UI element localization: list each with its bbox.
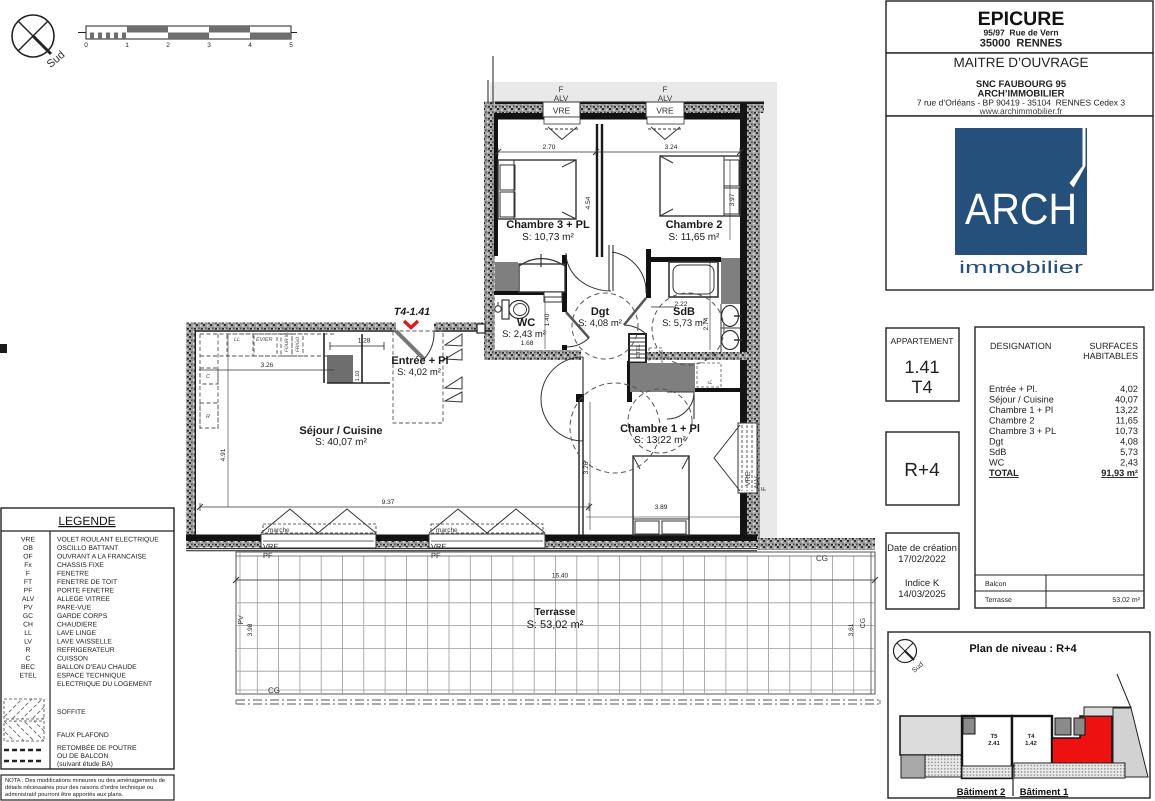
- svg-text:SdB: SdB: [989, 447, 1006, 457]
- svg-text:S: 5,73 m²: S: 5,73 m²: [662, 318, 706, 329]
- svg-text:VRE: VRE: [431, 542, 446, 551]
- svg-text:(suivant étude BA): (suivant étude BA): [57, 761, 113, 768]
- svg-text:5,73: 5,73: [1120, 447, 1138, 457]
- svg-text:9.37: 9.37: [382, 499, 395, 506]
- svg-text:4.54: 4.54: [585, 196, 592, 209]
- svg-text:marche: marche: [436, 527, 458, 534]
- svg-text:WC: WC: [517, 317, 535, 329]
- svg-text:Indice K: Indice K: [905, 578, 940, 589]
- svg-text:VRE: VRE: [553, 106, 571, 116]
- svg-text:BEC: BEC: [21, 664, 35, 671]
- svg-text:LV: LV: [24, 639, 32, 646]
- svg-text:CG: CG: [268, 686, 280, 695]
- svg-text:FOUR M.O.: FOUR M.O.: [284, 327, 290, 352]
- svg-text:Bâtiment 1: Bâtiment 1: [1020, 787, 1069, 798]
- svg-text:HABITABLES: HABITABLES: [1083, 351, 1138, 361]
- svg-text:1.68: 1.68: [521, 340, 534, 347]
- svg-text:T5: T5: [990, 733, 998, 740]
- svg-text:Entrée + Pl: Entrée + Pl: [391, 355, 448, 367]
- svg-text:EVIER: EVIER: [256, 337, 273, 343]
- svg-text:ALV: ALV: [554, 94, 569, 103]
- svg-text:17/02/2022: 17/02/2022: [898, 554, 946, 565]
- svg-text:immobilier: immobilier: [959, 258, 1084, 277]
- svg-text:1: 1: [125, 42, 129, 49]
- svg-text:5: 5: [289, 42, 293, 49]
- svg-text:WC: WC: [989, 458, 1005, 468]
- svg-text:T4: T4: [1027, 733, 1035, 740]
- svg-text:3.61: 3.61: [848, 623, 855, 636]
- svg-text:3.98: 3.98: [247, 623, 254, 636]
- svg-text:Entrée + Pl.: Entrée + Pl.: [989, 384, 1037, 394]
- svg-text:OU DE BALCON: OU DE BALCON: [57, 753, 108, 760]
- svg-text:T4: T4: [911, 377, 932, 397]
- svg-text:14/03/2025: 14/03/2025: [898, 589, 946, 600]
- svg-text:F: F: [761, 487, 768, 491]
- svg-text:LL: LL: [24, 630, 32, 637]
- svg-text:administratif pourront être ap: administratif pourront être apportés aux…: [5, 791, 124, 798]
- svg-text:Chambre 1 + Pl: Chambre 1 + Pl: [620, 423, 700, 435]
- svg-text:10,73: 10,73: [1115, 426, 1138, 436]
- svg-text:PF: PF: [263, 551, 273, 560]
- svg-text:Plan de niveau : R+4: Plan de niveau : R+4: [969, 643, 1077, 655]
- svg-text:ALV: ALV: [22, 596, 35, 603]
- svg-text:40,07: 40,07: [1115, 395, 1138, 405]
- svg-text:T4-1.41: T4-1.41: [394, 306, 430, 318]
- svg-text:R: R: [206, 414, 210, 420]
- svg-text:NOTA : Des modifications mineu: NOTA : Des modifications mineures ou des…: [5, 777, 165, 784]
- svg-text:Chambre 1 + Pl: Chambre 1 + Pl: [989, 405, 1053, 415]
- svg-text:S: 13,22 m²: S: 13,22 m²: [634, 435, 686, 446]
- svg-text:CHASSIS FIXE: CHASSIS FIXE: [57, 562, 104, 569]
- svg-text:CG: CG: [816, 554, 828, 563]
- svg-text:95/97 Rue de Vern: 95/97 Rue de Vern: [983, 28, 1058, 38]
- svg-text:Balcon: Balcon: [985, 580, 1007, 588]
- svg-text:TOTAL: TOTAL: [989, 468, 1019, 478]
- svg-text:F: F: [559, 85, 564, 94]
- svg-text:4: 4: [248, 42, 252, 49]
- svg-text:Chambre 2: Chambre 2: [666, 219, 723, 231]
- svg-text:marche: marche: [268, 527, 290, 534]
- svg-text:0: 0: [84, 42, 88, 49]
- svg-text:VRE: VRE: [745, 471, 752, 486]
- svg-text:3.24: 3.24: [665, 144, 678, 151]
- svg-text:S: 53,02 m²: S: 53,02 m²: [527, 619, 584, 631]
- svg-text:Chambre 3 + PL: Chambre 3 + PL: [989, 426, 1056, 436]
- svg-text:PORTE FENETRE: PORTE FENETRE: [57, 588, 114, 595]
- svg-text:ETEL: ETEL: [636, 344, 642, 358]
- svg-text:LL: LL: [234, 337, 240, 343]
- svg-text:ETEL: ETEL: [20, 673, 37, 680]
- svg-text:S: 4,02 m²: S: 4,02 m²: [397, 367, 441, 378]
- svg-text:VRE: VRE: [21, 537, 35, 544]
- svg-text:1.42: 1.42: [1025, 740, 1037, 747]
- svg-text:Chambre 2: Chambre 2: [989, 416, 1034, 426]
- svg-text:Dgt: Dgt: [989, 437, 1004, 447]
- svg-text:ESPACE TECHNIQUE: ESPACE TECHNIQUE: [57, 673, 126, 680]
- svg-text:FRIGO: FRIGO: [295, 337, 301, 352]
- svg-text:MAITRE D’OUVRAGE: MAITRE D’OUVRAGE: [953, 55, 1088, 70]
- svg-text:F.: F.: [707, 379, 714, 384]
- svg-text:15.40: 15.40: [552, 573, 569, 580]
- svg-text:ALLEGE VITREE: ALLEGE VITREE: [57, 596, 110, 603]
- svg-text:3: 3: [207, 42, 211, 49]
- svg-text:OF: OF: [23, 554, 32, 561]
- svg-text:GC: GC: [23, 613, 33, 620]
- svg-text:OSCILLO BATTANT: OSCILLO BATTANT: [57, 545, 118, 552]
- svg-text:Bâtiment 2: Bâtiment 2: [957, 787, 1006, 798]
- svg-text:VRE: VRE: [656, 106, 674, 116]
- svg-text:3.26: 3.26: [261, 362, 274, 369]
- svg-text:CG: CG: [860, 618, 867, 629]
- svg-text:91,93 m²: 91,93 m²: [1101, 468, 1138, 478]
- svg-text:1.10: 1.10: [355, 371, 361, 382]
- svg-text:PF: PF: [24, 588, 33, 595]
- svg-text:CUISSON: CUISSON: [57, 656, 88, 663]
- svg-text:Date de création: Date de création: [887, 543, 957, 554]
- svg-text:www.archimmobilier.fr: www.archimmobilier.fr: [979, 106, 1063, 116]
- svg-text:RETOMBÉE DE POUTRE: RETOMBÉE DE POUTRE: [57, 744, 137, 752]
- svg-text:Chambre 3 + PL: Chambre 3 + PL: [506, 219, 590, 231]
- svg-text:PF: PF: [431, 551, 441, 560]
- svg-text:S: 2,43 m²: S: 2,43 m²: [502, 329, 546, 340]
- svg-text:FAUX PLAFOND: FAUX PLAFOND: [57, 732, 109, 739]
- svg-text:13,22: 13,22: [1115, 405, 1138, 415]
- svg-text:2: 2: [166, 42, 170, 49]
- svg-text:Terrasse: Terrasse: [535, 607, 576, 618]
- svg-text:ALV: ALV: [658, 94, 673, 103]
- svg-text:1.41: 1.41: [904, 357, 939, 377]
- svg-text:VRE: VRE: [263, 542, 278, 551]
- svg-text:CHAUDIERE: CHAUDIERE: [57, 622, 97, 629]
- svg-text:DESIGNATION: DESIGNATION: [990, 341, 1051, 351]
- svg-text:S: 11,65 m²: S: 11,65 m²: [669, 232, 721, 243]
- svg-text:ARCH: ARCH: [965, 185, 1077, 234]
- svg-text:REFRIGERATEUR: REFRIGERATEUR: [57, 647, 115, 654]
- svg-text:R+4: R+4: [904, 460, 940, 481]
- svg-text:PV: PV: [238, 615, 245, 625]
- svg-text:35000 RENNES: 35000 RENNES: [980, 38, 1063, 50]
- svg-text:2.41: 2.41: [988, 740, 1000, 747]
- svg-text:GARDE CORPS: GARDE CORPS: [57, 613, 108, 620]
- svg-text:OB: OB: [23, 545, 33, 552]
- svg-text:Terrasse: Terrasse: [985, 597, 1012, 604]
- svg-text:CH: CH: [23, 622, 33, 629]
- svg-text:LEGENDE: LEGENDE: [58, 514, 115, 528]
- svg-text:FENETRE: FENETRE: [57, 571, 89, 578]
- svg-text:4.91: 4.91: [220, 448, 227, 461]
- svg-text:R: R: [26, 647, 31, 654]
- svg-text:PARE-VUE: PARE-VUE: [57, 605, 92, 612]
- svg-text:S: 40,07 m²: S: 40,07 m²: [315, 437, 367, 448]
- svg-text:ELECTRIQUE DU LOGEMENT: ELECTRIQUE DU LOGEMENT: [57, 681, 152, 688]
- svg-text:1.28: 1.28: [358, 338, 371, 345]
- svg-text:FENETRE DE TOIT: FENETRE DE TOIT: [57, 579, 117, 586]
- svg-text:11,65: 11,65: [1116, 416, 1138, 426]
- svg-text:PV: PV: [23, 605, 33, 612]
- svg-text:S: 10,73 m²: S: 10,73 m²: [522, 232, 574, 243]
- svg-text:Séjour / Cuisine: Séjour / Cuisine: [989, 395, 1054, 405]
- svg-text:Dgt: Dgt: [591, 306, 610, 318]
- svg-text:C: C: [26, 656, 31, 663]
- svg-text:FT: FT: [24, 579, 32, 586]
- svg-text:Fx: Fx: [24, 562, 32, 569]
- svg-text:ALV: ALV: [754, 476, 761, 489]
- svg-text:53,02 m²: 53,02 m²: [1112, 597, 1140, 604]
- svg-text:2.70: 2.70: [543, 144, 556, 151]
- svg-text:Séjour / Cuisine: Séjour / Cuisine: [299, 425, 382, 437]
- svg-text:C: C: [206, 374, 210, 380]
- svg-text:SOFFITE: SOFFITE: [57, 709, 86, 716]
- svg-text:3.89: 3.89: [655, 504, 668, 511]
- svg-text:APPARTEMENT: APPARTEMENT: [891, 336, 954, 346]
- svg-text:F: F: [26, 571, 30, 578]
- svg-text:SURFACES: SURFACES: [1089, 341, 1138, 351]
- svg-text:3.26: 3.26: [583, 461, 590, 474]
- svg-text:2.22: 2.22: [675, 301, 688, 308]
- svg-text:détails nécessaires pour des r: détails nécessaires pour des raisons d’o…: [5, 784, 153, 791]
- svg-text:S: 4,08 m²: S: 4,08 m²: [578, 318, 622, 329]
- svg-text:2.74: 2.74: [703, 317, 710, 330]
- svg-text:F: F: [663, 85, 668, 94]
- svg-text:4,08: 4,08: [1120, 437, 1138, 447]
- svg-text:LAVE LINGE: LAVE LINGE: [57, 630, 97, 637]
- svg-text:VOLET ROULANT ELECTRIQUE: VOLET ROULANT ELECTRIQUE: [57, 537, 159, 544]
- svg-text:2,43: 2,43: [1120, 458, 1138, 468]
- svg-text:BALLON D’EAU CHAUDE: BALLON D’EAU CHAUDE: [57, 664, 137, 671]
- svg-text:LAVE VAISSELLE: LAVE VAISSELLE: [57, 639, 112, 646]
- svg-text:OUVRANT A LA FRANCAISE: OUVRANT A LA FRANCAISE: [57, 554, 147, 561]
- svg-text:4,02: 4,02: [1120, 384, 1138, 394]
